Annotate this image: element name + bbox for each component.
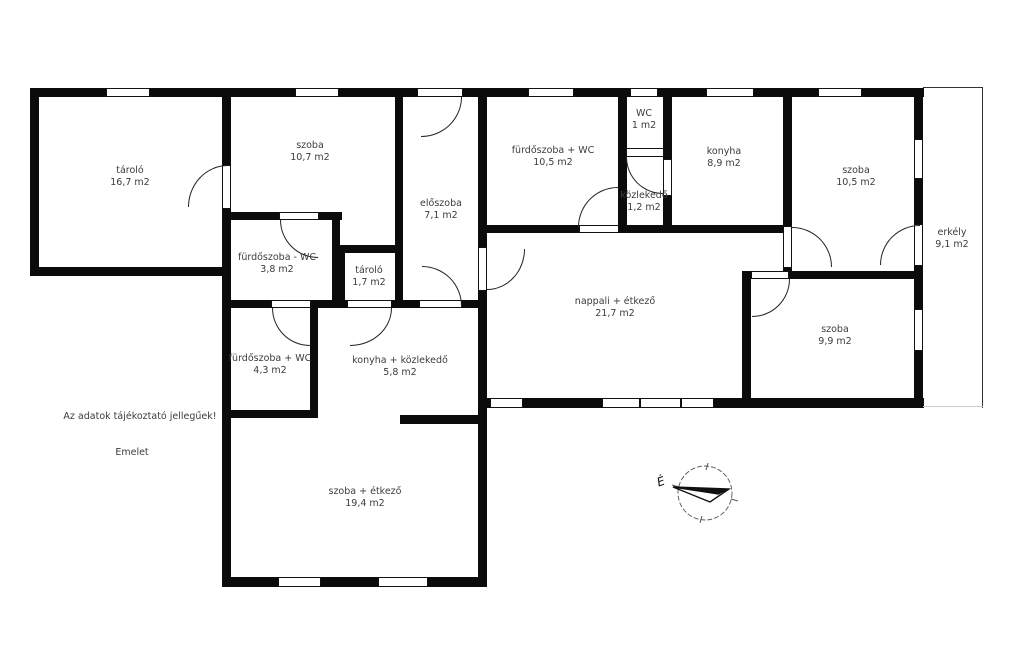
door-opening xyxy=(478,247,487,291)
room-name: nappali + étkező xyxy=(545,296,685,308)
door-swing-arc xyxy=(422,266,462,306)
room-area: 7,1 m2 xyxy=(401,210,481,222)
door-swing-arc xyxy=(188,165,228,207)
room-label-furdoszoba-wc-38: fürdőszoba - WC 3,8 m2 xyxy=(217,252,337,277)
room-area: 4,3 m2 xyxy=(210,365,330,377)
room-label-wc: WC 1 m2 xyxy=(614,108,674,133)
window xyxy=(490,398,523,408)
door-swing-arc xyxy=(421,97,462,137)
door-opening xyxy=(347,300,392,308)
room-area: 19,4 m2 xyxy=(295,498,435,510)
room-area: 16,7 m2 xyxy=(80,177,180,189)
room-name: szoba xyxy=(806,165,906,177)
window xyxy=(278,577,321,587)
wall xyxy=(222,88,231,587)
door-swing-arc xyxy=(272,308,310,346)
room-label-szoba-etkezo: szoba + étkező 19,4 m2 xyxy=(295,486,435,511)
window xyxy=(681,398,714,408)
room-name: WC xyxy=(614,108,674,120)
room-name: szoba xyxy=(785,324,885,336)
window xyxy=(630,88,658,97)
room-area: 10,7 m2 xyxy=(260,152,360,164)
door-opening xyxy=(783,226,792,268)
door-swing-arc xyxy=(626,157,663,194)
window xyxy=(914,139,923,179)
room-label-kozlekedo: közlekedő 1,2 m2 xyxy=(594,190,694,215)
door-swing-arc xyxy=(752,279,790,317)
balcony-edge xyxy=(923,87,983,88)
room-name: konyha xyxy=(674,146,774,158)
wall xyxy=(478,88,487,587)
wall xyxy=(671,225,792,233)
room-name: tároló xyxy=(329,265,409,277)
room-area: 5,8 m2 xyxy=(330,367,470,379)
wall xyxy=(222,577,487,587)
window xyxy=(528,88,574,97)
room-area: 1 m2 xyxy=(614,120,674,132)
room-name: szoba + étkező xyxy=(295,486,435,498)
room-label-szoba-107: szoba 10,7 m2 xyxy=(260,140,360,165)
door-opening xyxy=(626,148,664,157)
room-area: 1,2 m2 xyxy=(594,202,694,214)
door-opening xyxy=(271,300,311,308)
door-swing-arc xyxy=(487,249,525,290)
door-opening xyxy=(417,88,463,97)
room-name: tároló xyxy=(80,165,180,177)
room-area: 9,9 m2 xyxy=(785,336,885,348)
room-area: 9,1 m2 xyxy=(922,239,982,251)
window xyxy=(914,309,923,351)
window xyxy=(295,88,339,97)
room-name: fürdőszoba + WC xyxy=(493,145,613,157)
room-label-konyha-kozlekedo: konyha + közlekedő 5,8 m2 xyxy=(330,355,470,380)
room-label-konyha: konyha 8,9 m2 xyxy=(674,146,774,171)
room-area: 3,8 m2 xyxy=(217,264,337,276)
door-opening xyxy=(279,212,319,220)
wall xyxy=(222,410,318,418)
room-area: 10,5 m2 xyxy=(493,157,613,169)
room-label-tarolo-kicsi: tároló 1,7 m2 xyxy=(329,265,409,290)
room-name: fürdőszoba + WC xyxy=(210,353,330,365)
balcony-edge xyxy=(923,406,983,407)
window xyxy=(106,88,150,97)
room-label-tarolo-nagy: tároló 16,7 m2 xyxy=(80,165,180,190)
window xyxy=(640,398,681,408)
window xyxy=(818,88,862,97)
door-swing-arc xyxy=(880,225,920,265)
disclaimer-text: Az adatok tájékoztató jellegűek! xyxy=(58,411,222,422)
room-name: konyha + közlekedő xyxy=(330,355,470,367)
wall xyxy=(478,225,671,233)
window xyxy=(706,88,754,97)
balcony-edge xyxy=(982,87,983,408)
room-area: 1,7 m2 xyxy=(329,277,409,289)
room-label-furdoszoba-wc-105: fürdőszoba + WC 10,5 m2 xyxy=(493,145,613,170)
door-swing-arc xyxy=(350,308,392,346)
room-name: szoba xyxy=(260,140,360,152)
door-swing-arc xyxy=(792,227,832,267)
room-name: fürdőszoba - WC xyxy=(217,252,337,264)
room-name: erkély xyxy=(922,227,982,239)
window xyxy=(378,577,428,587)
room-label-eloszoba: előszoba 7,1 m2 xyxy=(401,198,481,223)
window xyxy=(602,398,640,408)
wall xyxy=(400,415,487,424)
room-area: 10,5 m2 xyxy=(806,177,906,189)
wall xyxy=(30,88,39,276)
room-label-furdoszoba-wc-43: fürdőszoba + WC 4,3 m2 xyxy=(210,353,330,378)
north-label: É xyxy=(655,473,667,490)
wall xyxy=(337,245,397,253)
room-label-szoba-99: szoba 9,9 m2 xyxy=(785,324,885,349)
room-area: 21,7 m2 xyxy=(545,308,685,320)
door-opening xyxy=(751,271,789,279)
room-area: 8,9 m2 xyxy=(674,158,774,170)
room-label-erkely: erkély 9,1 m2 xyxy=(922,227,982,252)
wall xyxy=(742,271,751,408)
room-name: előszoba xyxy=(401,198,481,210)
room-name: közlekedő xyxy=(594,190,694,202)
compass-north-arrow: É xyxy=(653,443,763,553)
floor-label: Emelet xyxy=(58,447,206,458)
room-label-szoba-105: szoba 10,5 m2 xyxy=(806,165,906,190)
wall xyxy=(30,267,231,276)
floor-plan-canvas: tároló 16,7 m2 szoba 10,7 m2 fürdőszoba … xyxy=(0,0,1024,661)
room-label-nappali-etkezo: nappali + étkező 21,7 m2 xyxy=(545,296,685,321)
